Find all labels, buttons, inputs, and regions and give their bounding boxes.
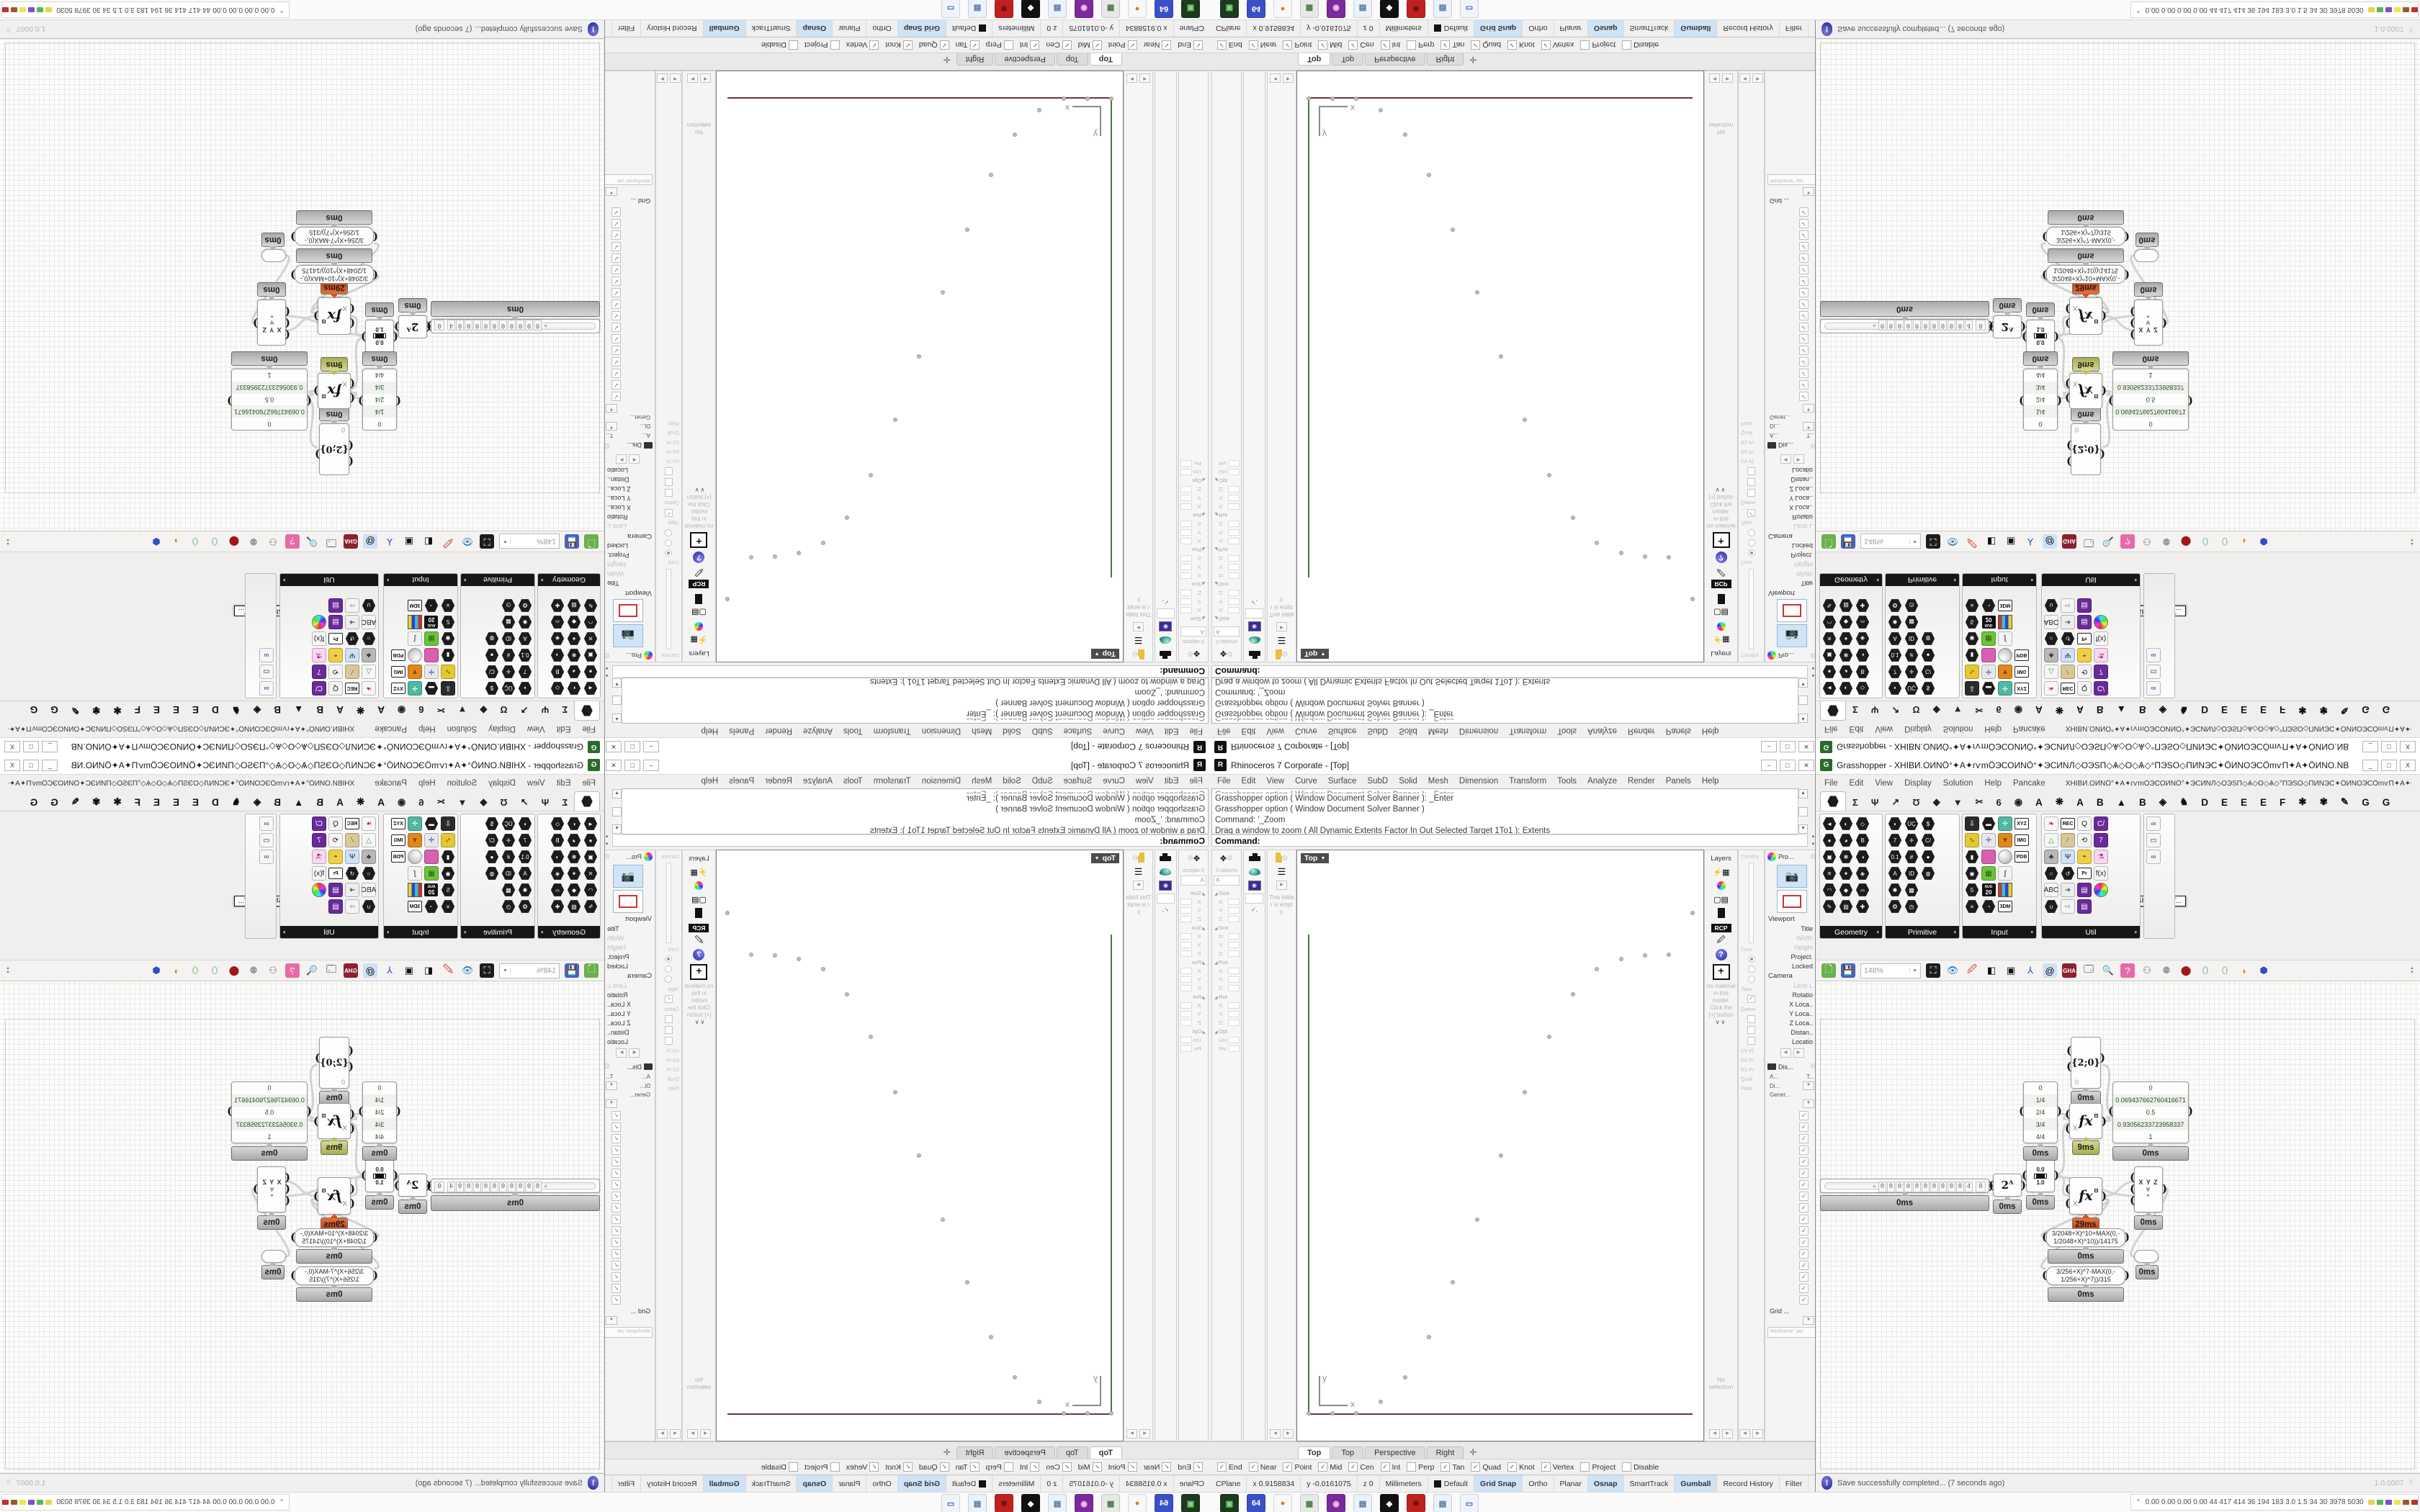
gh-letter-tab-B-3[interactable]: B bbox=[2090, 797, 2110, 811]
help-icon[interactable]: ? bbox=[694, 552, 705, 563]
shaded-sphere-icon[interactable] bbox=[1248, 866, 1261, 878]
rhino-menu-edit[interactable]: Edit bbox=[1165, 777, 1179, 786]
component-icon[interactable]: ID bbox=[501, 866, 516, 881]
rhino-menu-help[interactable]: Help bbox=[701, 726, 718, 735]
boxedit-field-box[interactable] bbox=[1228, 503, 1240, 510]
gh-letter-tab-A-2[interactable]: A bbox=[2070, 701, 2090, 715]
sketch-quill-icon[interactable]: 🖉 bbox=[1965, 963, 1979, 978]
osnap-checkbox-disable[interactable] bbox=[1622, 1462, 1631, 1472]
gh-menu-view[interactable]: View bbox=[527, 779, 545, 788]
component-icon[interactable]: ◈ bbox=[1855, 866, 1870, 881]
osnap-item-point[interactable]: ✓Point bbox=[1283, 40, 1312, 50]
wireframe-settings-box[interactable]: Wireframe" set bbox=[1767, 1327, 1816, 1338]
gha-icon[interactable]: GHA bbox=[344, 534, 358, 549]
viewport-rect-button[interactable] bbox=[613, 890, 643, 913]
component-icon[interactable]: ▦ bbox=[1981, 631, 1996, 646]
inkscape-icon[interactable]: ◆ bbox=[1380, 1494, 1399, 1512]
component-icon[interactable]: IMG bbox=[391, 833, 405, 847]
constraint-radio[interactable] bbox=[665, 529, 673, 536]
display-checkbox-1[interactable]: ✓ bbox=[1799, 1122, 1809, 1132]
boxedit-field-box[interactable] bbox=[1228, 1002, 1240, 1009]
component-icon[interactable]: ÜÇ bbox=[501, 681, 516, 696]
constraint-checkbox-checked[interactable]: ✓ bbox=[665, 509, 673, 517]
component-icon[interactable]: Pr bbox=[328, 631, 343, 646]
gh-letter-tab-B-5[interactable]: B bbox=[267, 797, 287, 811]
display-checkbox-3[interactable]: ✓ bbox=[611, 357, 621, 366]
scroll-thumb[interactable] bbox=[1798, 696, 1808, 706]
osnap-checkbox-mid[interactable]: ✓ bbox=[1318, 1462, 1327, 1472]
gh-icon-tab-2[interactable]: ↗ bbox=[1885, 796, 1906, 811]
osnap-item-project[interactable]: Project bbox=[1580, 1462, 1615, 1472]
pink-box-icon[interactable]: ? bbox=[2120, 534, 2135, 549]
rhino-titlebar[interactable]: R Rhinoceros 7 Corporate - [Top] – □ ✕ bbox=[601, 756, 1210, 775]
digit-cell[interactable]: 0 bbox=[534, 1182, 542, 1192]
tray-mark-icon[interactable] bbox=[2385, 1500, 2392, 1505]
property-item-yloca[interactable]: Y Loca.. bbox=[1765, 1008, 1819, 1017]
component-icon[interactable]: ❂ bbox=[1888, 899, 1902, 914]
preview-eye-icon[interactable]: 👁 bbox=[1945, 534, 1960, 549]
folder-icon[interactable]: ⚙ bbox=[1132, 852, 1145, 864]
component-icon[interactable]: ⇩ bbox=[441, 816, 455, 831]
constraints-next-button[interactable]: ▶ bbox=[1752, 73, 1763, 83]
digit-cell[interactable]: 0 bbox=[490, 320, 498, 330]
gh-menu-view[interactable]: View bbox=[527, 724, 545, 733]
rhino-menu-analyze[interactable]: Analyze bbox=[1587, 777, 1617, 786]
component-icon[interactable]: REC bbox=[2061, 681, 2075, 696]
rhino-command-history[interactable]: Grasshopper option ( Window Document Sol… bbox=[1211, 788, 1808, 834]
rhino-menu-tools[interactable]: Tools bbox=[843, 726, 863, 735]
component-icon[interactable]: ▦ bbox=[1981, 866, 1996, 881]
constraint-checkbox[interactable] bbox=[1747, 489, 1755, 497]
rhino-menu-curve[interactable]: Curve bbox=[1103, 777, 1125, 786]
property-item-title[interactable]: Title bbox=[601, 923, 655, 932]
recorder-app-icon[interactable]: ▣ bbox=[1181, 0, 1200, 18]
gh-letter-tab-B-5[interactable]: B bbox=[2133, 797, 2153, 811]
boxedit-field-box[interactable] bbox=[1180, 985, 1192, 991]
component-icon[interactable]: ⚗ bbox=[2094, 850, 2108, 864]
component-icon[interactable]: ⟲ bbox=[328, 665, 343, 679]
display-checkbox[interactable]: ✓, bbox=[1155, 906, 1176, 913]
status-smarttrack[interactable]: SmartTrack bbox=[1624, 20, 1675, 37]
osnap-checkbox-project[interactable] bbox=[830, 40, 840, 50]
osnap-item-cen[interactable]: ✓Cen bbox=[1348, 40, 1373, 50]
osnap-item-disable[interactable]: Disable bbox=[761, 1462, 798, 1472]
blue-sphere-icon[interactable]: ⬢ bbox=[2257, 534, 2271, 549]
osnap-checkbox-quad[interactable]: ✓ bbox=[940, 40, 949, 50]
component-icon[interactable]: PDB bbox=[2015, 850, 2029, 864]
display-checkbox-2[interactable]: ✓ bbox=[611, 369, 621, 378]
display-checkbox-16[interactable]: ✓ bbox=[611, 207, 621, 217]
rhino-menu-panels[interactable]: Panels bbox=[729, 726, 754, 735]
component-icon[interactable]: Pr bbox=[2077, 866, 2092, 881]
purple-app-icon[interactable]: ◉ bbox=[1327, 0, 1345, 18]
component-icon[interactable]: ❋ bbox=[1839, 850, 1853, 864]
gh-letter-tab-E-10[interactable]: E bbox=[2234, 797, 2254, 811]
ribbon-group-label-primitive[interactable]: Primitive▾ bbox=[461, 574, 534, 586]
component-icon[interactable]: IMG bbox=[2015, 665, 2029, 679]
component-icon[interactable]: A bbox=[518, 866, 532, 881]
property-item-zloca[interactable]: Z Loca.. bbox=[601, 485, 655, 495]
display-checkbox-11[interactable]: ✓ bbox=[611, 265, 621, 274]
component-icon[interactable]: ▼ bbox=[408, 833, 422, 847]
remap-component[interactable]: ( 0.01.0 ) bbox=[365, 1159, 394, 1192]
component-icon[interactable]: ∪ bbox=[2044, 598, 2058, 613]
status-cplane[interactable]: CPlane bbox=[1210, 20, 1247, 37]
xyz-component[interactable]: ( ( ( X Y Z⑂° ) bbox=[2134, 300, 2163, 346]
digit-cell[interactable]: 0 bbox=[534, 320, 542, 330]
expression-text-panel-1[interactable]: ( 3/2048+X)^10+MAX(0,- 1/2048+X)^10))/14… bbox=[2046, 1228, 2125, 1247]
tray-mark-icon[interactable] bbox=[28, 1500, 35, 1505]
dock-prev-button[interactable]: ◀ bbox=[1139, 73, 1150, 83]
green-gumball-icon[interactable]: ⬯ bbox=[188, 534, 202, 549]
gh-letter-tab-G-17[interactable]: G bbox=[24, 797, 45, 811]
digit-cell[interactable]: 0 bbox=[1878, 320, 1886, 330]
status-planar[interactable]: Planar bbox=[832, 20, 866, 37]
rhino-top-viewport[interactable]: Top ▼ y x bbox=[716, 71, 1124, 662]
display-checkbox-0[interactable]: ✓ bbox=[1799, 1111, 1809, 1120]
component-icon[interactable]: ◆ bbox=[1839, 615, 1853, 629]
component-icon[interactable]: ✦ bbox=[1839, 631, 1853, 646]
gh-letter-tab-✱-13[interactable]: ✱ bbox=[107, 796, 127, 811]
rhino-command-input[interactable]: Command: bbox=[1211, 834, 1808, 847]
component-icon[interactable]: △ bbox=[2044, 833, 2058, 847]
status-filter[interactable]: Filter bbox=[1780, 20, 1809, 37]
rhino-menu-help[interactable]: Help bbox=[1702, 726, 1719, 735]
display-checkbox-14[interactable]: ✓ bbox=[611, 230, 621, 240]
digit-cell[interactable]: 0 bbox=[1887, 1182, 1895, 1192]
rhino-menu-subd[interactable]: SubD bbox=[1032, 777, 1053, 786]
tray-mark-icon[interactable] bbox=[2368, 1500, 2375, 1505]
dock-next-button[interactable]: ▶ bbox=[1126, 1429, 1137, 1439]
digit-cell[interactable]: 4 bbox=[447, 1182, 455, 1192]
component-icon[interactable]: ✕ bbox=[583, 631, 598, 646]
purple-app-icon[interactable]: ◉ bbox=[1075, 0, 1093, 18]
status-smarttrack[interactable]: SmartTrack bbox=[745, 1475, 797, 1492]
gh-close-button[interactable]: X bbox=[4, 742, 20, 753]
camera-box-icon[interactable]: ▣ bbox=[2004, 534, 2018, 549]
property-item-project[interactable]: Project. bbox=[1765, 951, 1819, 960]
component-icon[interactable]: IMG bbox=[2015, 833, 2029, 847]
gh-icon-tab-8[interactable]: ◉ bbox=[391, 796, 412, 811]
axes-tripod-icon[interactable]: ⅄ bbox=[2023, 534, 2038, 549]
osnap-item-knot[interactable]: ✓Knot bbox=[1507, 40, 1535, 50]
gh-icon-tab-8[interactable]: ◉ bbox=[2008, 796, 2029, 811]
component-icon[interactable]: ◑ bbox=[550, 850, 565, 864]
gray-spheres-icon[interactable]: ⚇ bbox=[2140, 534, 2154, 549]
tray-mark-icon[interactable] bbox=[2403, 1500, 2409, 1505]
digit-cell[interactable]: 0 bbox=[490, 1182, 498, 1192]
gh-letter-tab-E-9[interactable]: E bbox=[2215, 701, 2234, 715]
path-panel-component[interactable]: ( ( {2;0} 0 ) bbox=[2071, 423, 2101, 475]
gh-letter-tab-E-10[interactable]: E bbox=[2234, 701, 2254, 715]
component-icon[interactable]: ✛ bbox=[424, 833, 439, 847]
named-view-camera-icon[interactable]: ◉ bbox=[1248, 621, 1261, 632]
component-icon[interactable]: ABC bbox=[2044, 615, 2058, 629]
component-icon[interactable]: REC bbox=[345, 681, 359, 696]
status-grid-snap[interactable]: Grid Snap bbox=[897, 20, 946, 37]
rhino-menu-view[interactable]: View bbox=[1266, 777, 1284, 786]
ribbon-group-label-geometry[interactable]: Geometry▾ bbox=[538, 926, 600, 938]
firefox-icon[interactable]: ● bbox=[1273, 1494, 1292, 1512]
student-cap-icon[interactable] bbox=[1248, 852, 1261, 864]
rhino-menu-render[interactable]: Render bbox=[765, 726, 792, 735]
osnap-item-tan[interactable]: ✓Tan bbox=[956, 40, 980, 50]
gh-letter-tab-G-17[interactable]: G bbox=[2376, 797, 2397, 811]
component-icon[interactable]: ▮ bbox=[441, 850, 455, 864]
gh-menu-solution[interactable]: Solution bbox=[1943, 779, 1973, 788]
viewport-properties-button[interactable]: 📷 bbox=[613, 624, 643, 647]
rhino-menu-dimension[interactable]: Dimension bbox=[922, 726, 961, 735]
component-icon[interactable]: ≡ bbox=[1965, 598, 1979, 613]
component-icon[interactable]: ♣ bbox=[2044, 850, 2058, 864]
screenshot-app-icon[interactable]: ▦ bbox=[1101, 0, 1120, 18]
display-checkbox-3[interactable]: ✓ bbox=[611, 1146, 621, 1155]
osnap-checkbox-knot[interactable]: ✓ bbox=[1507, 40, 1517, 50]
remap-component[interactable]: ( 0.01.0 ) bbox=[2026, 1159, 2055, 1192]
osnap-checkbox-tan[interactable]: ✓ bbox=[1440, 40, 1450, 50]
gh-letter-tab-✎-15[interactable]: ✎ bbox=[2334, 796, 2355, 811]
constraint-radio-on[interactable] bbox=[1748, 549, 1755, 557]
status-gumball[interactable]: Gumball bbox=[703, 20, 745, 37]
command-history-scrollbar[interactable]: ▲ ▼ bbox=[1798, 788, 1808, 834]
viewport-tab-top-1[interactable]: Top bbox=[1057, 53, 1088, 66]
digit-cell[interactable]: 0 bbox=[1956, 1182, 1964, 1192]
display-checkbox-6[interactable]: ✓ bbox=[1799, 1180, 1809, 1189]
osnap-item-perp[interactable]: Perp bbox=[1407, 1462, 1434, 1472]
component-icon[interactable]: ✺ bbox=[518, 883, 532, 897]
component-icon[interactable]: ✎ bbox=[583, 598, 598, 613]
property-item-viewport[interactable]: Viewport bbox=[1765, 589, 1819, 599]
viewport-dropdown-icon[interactable]: ▼ bbox=[1320, 652, 1325, 657]
boxedit-filter-input[interactable]: A bbox=[1214, 876, 1240, 886]
osnap-checkbox-knot[interactable]: ✓ bbox=[903, 40, 913, 50]
component-icon[interactable]: C/ bbox=[485, 665, 499, 679]
viewport-tab-right-3[interactable]: Right bbox=[1427, 1446, 1464, 1459]
osnap-item-int[interactable]: ✓Int bbox=[1381, 1462, 1401, 1472]
folder-icon[interactable]: ⚙ bbox=[1132, 648, 1145, 660]
component-icon[interactable]: ▮ bbox=[1965, 850, 1979, 864]
display-checkbox-5[interactable]: ✓ bbox=[611, 1169, 621, 1178]
ribbon-group-label-primitive[interactable]: Primitive▾ bbox=[1886, 574, 1959, 586]
rhino-titlebar[interactable]: R Rhinoceros 7 Corporate - [Top] – □ ✕ bbox=[1210, 737, 1819, 756]
component-icon[interactable]: ⚗ bbox=[312, 850, 326, 864]
property-item-width[interactable]: Width bbox=[1765, 932, 1819, 942]
display-dropdown2-icon[interactable]: ▼ bbox=[606, 1099, 617, 1108]
window-app-icon[interactable]: ▭ bbox=[1460, 0, 1479, 18]
constraint-checkbox[interactable] bbox=[1747, 478, 1755, 486]
status-osnap[interactable]: Osnap bbox=[796, 20, 832, 37]
osnap-checkbox-tan[interactable]: ✓ bbox=[970, 40, 980, 50]
red-app-icon[interactable]: ✾ bbox=[995, 1494, 1013, 1512]
boxedit-field-box[interactable] bbox=[1180, 968, 1192, 974]
path-panel-component[interactable]: ( ( {2;0} 0 ) bbox=[319, 423, 349, 475]
display-checkbox-7[interactable]: ✓ bbox=[1799, 1192, 1809, 1201]
viewport-tab-top-1[interactable]: Top bbox=[1332, 53, 1363, 66]
digit-cell[interactable]: 0 bbox=[525, 320, 533, 330]
display-checkbox-10[interactable]: ✓ bbox=[1799, 276, 1809, 286]
osnap-item-project[interactable]: Project bbox=[805, 40, 840, 50]
rhino-command-input[interactable]: Command: bbox=[612, 665, 1209, 678]
osnap-item-vertex[interactable]: ✓Vertex bbox=[1541, 40, 1574, 50]
component-icon[interactable]: ▬ bbox=[1981, 816, 1996, 831]
notepad2-icon[interactable]: ▤ bbox=[968, 1494, 987, 1512]
boxedit-field-box[interactable] bbox=[1180, 538, 1192, 544]
gh-letter-tab-E-9[interactable]: E bbox=[186, 701, 205, 715]
firefox-icon[interactable]: ● bbox=[1128, 1494, 1147, 1512]
red-app-icon[interactable]: ✾ bbox=[1407, 0, 1425, 18]
gh-letter-tab-✾-14[interactable]: ✾ bbox=[2313, 701, 2334, 716]
component-icon[interactable] bbox=[2094, 883, 2108, 897]
component-icon[interactable]: 3DM bbox=[1998, 899, 2012, 914]
component-icon[interactable]: ◍ bbox=[1921, 866, 1935, 881]
gh-menu-help[interactable]: Help bbox=[1984, 724, 2002, 733]
properties-next-button[interactable]: ▶ bbox=[1793, 454, 1804, 464]
osnap-checkbox-near[interactable]: ✓ bbox=[1249, 1462, 1258, 1472]
status-osnap[interactable]: Osnap bbox=[1588, 1475, 1624, 1492]
ribbon-group-label-util[interactable]: Util▾ bbox=[280, 574, 378, 586]
rhino-menu-transform[interactable]: Transform bbox=[874, 777, 911, 786]
ribbon-group-label-primitive[interactable]: Primitive▾ bbox=[461, 926, 534, 938]
component-icon[interactable]: 5 bbox=[1965, 615, 1979, 629]
scroll-down-icon[interactable]: ▼ bbox=[612, 678, 622, 688]
component-icon[interactable]: ➜ bbox=[2061, 615, 2075, 629]
viewport-tab-top-1[interactable]: Top bbox=[1057, 1446, 1088, 1459]
gh-letter-tab-A-2[interactable]: A bbox=[330, 797, 350, 811]
add-material-button[interactable]: + bbox=[691, 532, 708, 548]
component-icon[interactable]: ✛ bbox=[1981, 665, 1996, 679]
component-icon[interactable]: ID bbox=[1904, 631, 1919, 646]
rhino-maximize-button[interactable]: □ bbox=[624, 760, 640, 771]
component-icon[interactable]: ▭ bbox=[259, 665, 274, 679]
properties-next-button[interactable]: ▶ bbox=[617, 454, 627, 464]
expression-text-panel-2[interactable]: ( 3/256+X)^7-MAX(0,- 1/256+X)^7))/315 ) bbox=[295, 227, 374, 246]
boxedit-filter-input[interactable]: A bbox=[1214, 626, 1240, 636]
gh-minimize-button[interactable]: _ bbox=[42, 742, 58, 753]
osnap-checkbox-knot[interactable]: ✓ bbox=[1507, 1462, 1517, 1472]
osnap-item-quad[interactable]: ✓Quad bbox=[919, 1462, 949, 1472]
gh-letter-tab-✱-13[interactable]: ✱ bbox=[2292, 796, 2313, 811]
osnap-checkbox-perp[interactable] bbox=[1407, 1462, 1416, 1472]
digit-cell[interactable]: 0 bbox=[1930, 1182, 1938, 1192]
constraint-checkbox[interactable] bbox=[1747, 1037, 1755, 1045]
window-pin-icon[interactable]: 🗔 bbox=[324, 963, 339, 978]
component-icon[interactable]: C/ bbox=[2094, 681, 2108, 696]
gh-icon-tab-1[interactable]: Ψ bbox=[1865, 701, 1886, 715]
viewport-title-chip[interactable]: Top ▼ bbox=[1301, 649, 1329, 659]
component-icon[interactable]: ⇩ bbox=[1965, 816, 1979, 831]
display-checkbox-11[interactable]: ✓ bbox=[1799, 265, 1809, 274]
values-panel-component[interactable]: ( 00.0694376627604166710.50.930562337239… bbox=[231, 369, 308, 431]
gh-letter-tab-F-12[interactable]: F bbox=[128, 701, 147, 715]
gh-icon-tab-3[interactable]: Ʊ bbox=[493, 797, 514, 811]
component-icon[interactable]: ≡ bbox=[441, 899, 455, 914]
gh-minimize-button[interactable]: _ bbox=[2362, 760, 2378, 771]
component-icon[interactable]: 0.1 bbox=[1888, 850, 1902, 864]
gh-letter-tab-✎-15[interactable]: ✎ bbox=[65, 796, 86, 811]
layers-next-button[interactable]: ▶ bbox=[687, 1429, 698, 1439]
viewport-title-chip[interactable]: Top ▼ bbox=[1301, 853, 1329, 863]
display-checkbox-13[interactable]: ✓ bbox=[1799, 242, 1809, 251]
component-icon[interactable]: ✕ bbox=[1822, 631, 1837, 646]
gh-icon-tab-5[interactable]: ▼ bbox=[451, 797, 473, 811]
component-icon[interactable]: △ bbox=[362, 665, 376, 679]
tray-mark-icon[interactable] bbox=[45, 1500, 52, 1505]
boxedit-field-box[interactable] bbox=[1228, 1020, 1240, 1026]
hamburger-menu-icon[interactable]: ☰ bbox=[1132, 866, 1145, 878]
display-checkbox-5[interactable]: ✓ bbox=[1799, 334, 1809, 343]
component-icon[interactable]: ◠ bbox=[1822, 883, 1837, 897]
boxedit-field-box[interactable] bbox=[1180, 529, 1192, 536]
sketch-quill-icon[interactable]: 🖉 bbox=[1965, 534, 1979, 549]
canvas-zoom-select[interactable]: 148%▼ bbox=[499, 963, 560, 978]
component-icon[interactable]: ➜ bbox=[345, 883, 359, 897]
scroll-down-icon[interactable]: ▼ bbox=[1798, 678, 1808, 688]
gh-minimize-button[interactable]: _ bbox=[42, 760, 58, 771]
component-icon[interactable]: ▨ bbox=[567, 598, 581, 613]
status-gumball[interactable]: Gumball bbox=[703, 1475, 745, 1492]
component-icon[interactable]: ↺ bbox=[345, 866, 359, 881]
osnap-checkbox-project[interactable] bbox=[1580, 1462, 1590, 1472]
gh-icon-tab-4[interactable]: ◆ bbox=[473, 701, 493, 716]
status-millimeters[interactable]: Millimeters bbox=[1380, 20, 1428, 37]
rhino-menu-subd[interactable]: SubD bbox=[1367, 777, 1388, 786]
rhino-menu-surface[interactable]: Surface bbox=[1064, 726, 1093, 735]
component-icon[interactable]: ↺ bbox=[2061, 866, 2075, 881]
shaded-sphere-icon[interactable] bbox=[1248, 634, 1261, 646]
status-grid-snap[interactable]: Grid Snap bbox=[1474, 1475, 1523, 1492]
property-item-project[interactable]: Project. bbox=[601, 951, 655, 960]
constraints-prev-button[interactable]: ◀ bbox=[1739, 1429, 1750, 1439]
component-icon[interactable]: ∪ bbox=[362, 899, 376, 914]
orange-half-icon[interactable]: ◗ bbox=[2237, 963, 2251, 978]
component-icon[interactable]: ✦ bbox=[567, 866, 581, 881]
component-icon[interactable]: ◠ bbox=[1822, 615, 1837, 629]
quarters-panel-component[interactable]: ( 01/42/43/44/4 ) bbox=[2023, 1081, 2058, 1143]
component-icon[interactable]: ✛ bbox=[501, 833, 516, 847]
wireframe-settings-box[interactable]: Wireframe" set bbox=[1767, 174, 1816, 185]
digit-cell[interactable]: 0 bbox=[482, 320, 490, 330]
toolbar-scroll-arrows[interactable]: ▲▼ bbox=[2410, 966, 2414, 975]
add-material-button[interactable]: + bbox=[1713, 532, 1730, 548]
gh-letter-tab-❋-1[interactable]: ❋ bbox=[2049, 701, 2070, 716]
component-icon[interactable]: B bbox=[1855, 665, 1870, 679]
property-item-distan[interactable]: Distan.. bbox=[601, 476, 655, 485]
component-icon[interactable]: ⟲ bbox=[2077, 833, 2092, 847]
constraint-checkbox[interactable] bbox=[665, 1026, 673, 1034]
tray-mark-icon[interactable] bbox=[28, 7, 35, 12]
component-icon[interactable]: ✦ bbox=[1839, 866, 1853, 881]
preview-mesh-icon[interactable]: ◧ bbox=[1984, 534, 1999, 549]
status-cplane[interactable]: CPlane bbox=[1173, 20, 1210, 37]
recorder-app-icon[interactable]: ▣ bbox=[1181, 1494, 1200, 1512]
osnap-item-mid[interactable]: ✓Mid bbox=[1318, 40, 1342, 50]
display-checkbox-13[interactable]: ✓ bbox=[611, 1261, 621, 1270]
gh-letter-tab-B-3[interactable]: B bbox=[310, 701, 330, 715]
ribbon-group-label-input[interactable]: Input▾ bbox=[1963, 926, 2036, 938]
digit-cell[interactable]: 0 bbox=[1922, 320, 1930, 330]
boxedit-field-box[interactable] bbox=[1228, 942, 1240, 948]
component-icon[interactable]: $ bbox=[485, 816, 499, 831]
pink-box-icon[interactable]: ? bbox=[285, 534, 300, 549]
layer-state-icon[interactable]: ⚡▦ bbox=[694, 635, 705, 645]
firefox-icon[interactable]: ● bbox=[1128, 0, 1147, 18]
display-checkbox-7[interactable]: ✓ bbox=[611, 1192, 621, 1201]
component-icon[interactable]: ○ bbox=[362, 631, 376, 646]
path-panel-component[interactable]: ( ( {2;0} 0 ) bbox=[319, 1037, 349, 1089]
gh-menu-view[interactable]: View bbox=[1875, 779, 1893, 788]
component-icon[interactable]: ▤ bbox=[328, 615, 343, 629]
gh-icon-tab-2[interactable]: ↗ bbox=[1885, 701, 1906, 716]
